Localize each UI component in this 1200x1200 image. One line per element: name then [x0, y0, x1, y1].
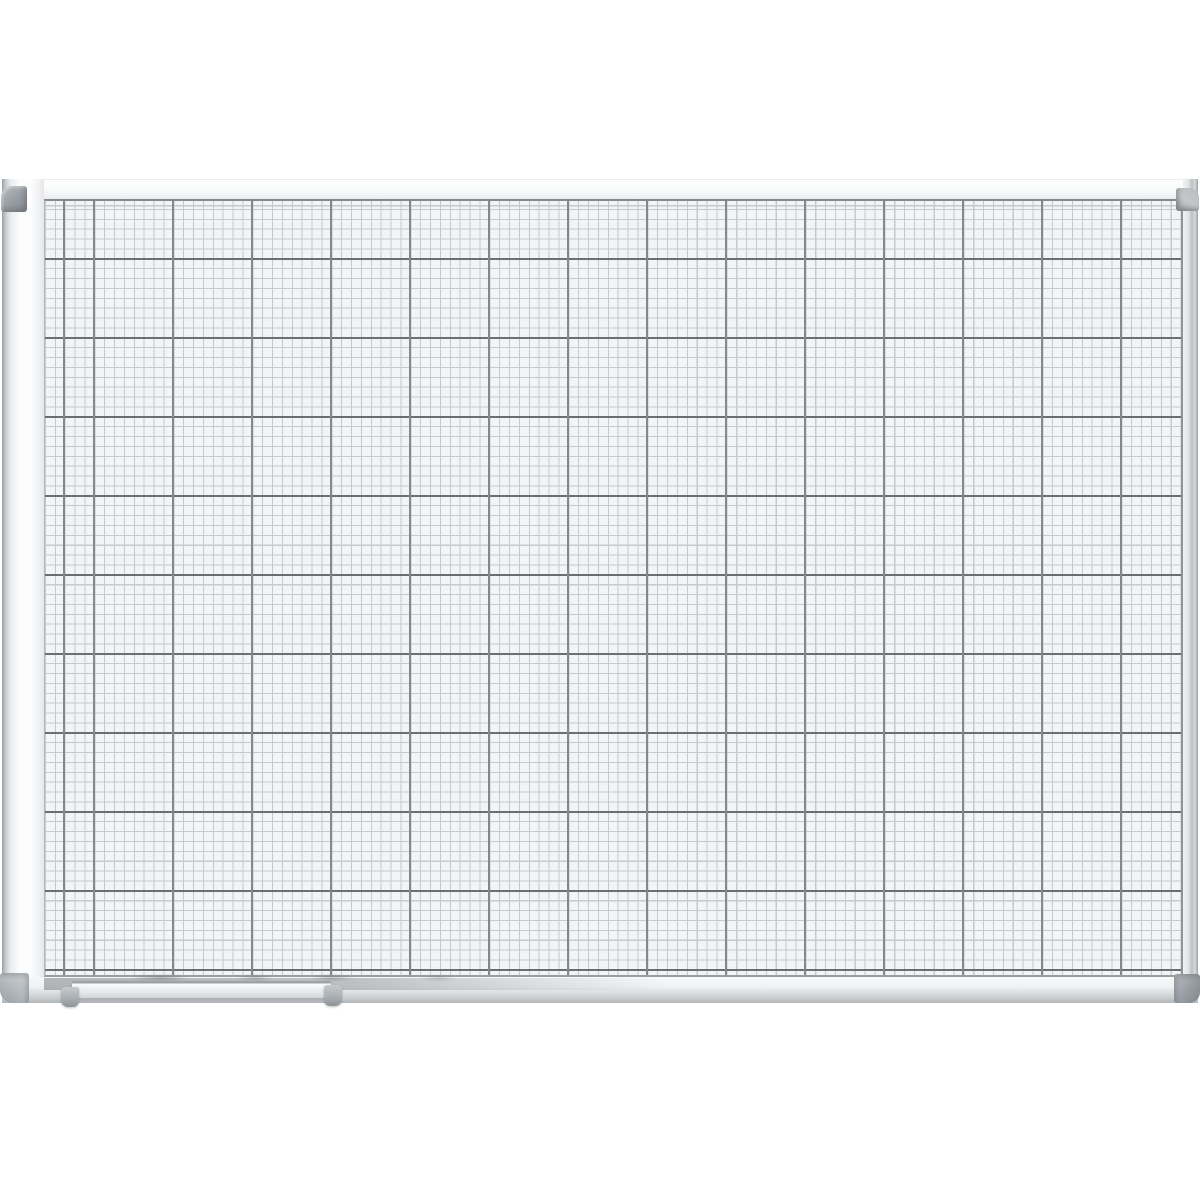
pen-tray-left-end-cap [61, 987, 79, 1007]
frame-left [2, 179, 44, 1003]
frame-right [1183, 179, 1198, 1003]
corner-cap-top-left [1, 186, 27, 212]
pen-tray-right-end-cap [324, 985, 342, 1006]
product-photo [0, 0, 1200, 1200]
corner-cap-bottom-right [1174, 974, 1200, 1003]
corner-cap-top-right [1176, 188, 1199, 211]
corner-cap-bottom-left [0, 973, 29, 1003]
pen-tray-shelf [72, 981, 331, 998]
whiteboard [2, 179, 1198, 1003]
grid-surface [44, 199, 1183, 977]
pen-tray [61, 980, 342, 1008]
frame-top [2, 179, 1198, 200]
